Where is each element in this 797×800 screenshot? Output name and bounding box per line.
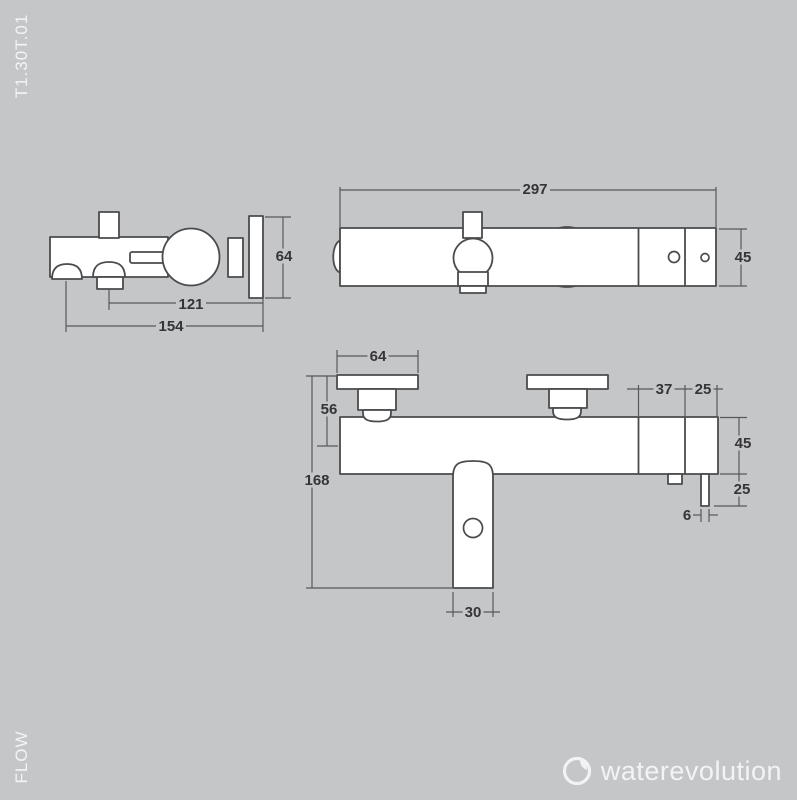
top-hole-large <box>669 252 680 263</box>
dim-label-total-width: 297 <box>522 181 547 198</box>
front-connector-left-cap <box>363 410 391 422</box>
top-lever-tip <box>460 286 486 293</box>
top-body-bar <box>340 228 716 286</box>
dim-label-outlet-drop: 25 <box>734 481 751 498</box>
side-connector <box>228 238 243 277</box>
dim-label-body-height: 45 <box>735 435 752 452</box>
dim-label-total-height: 168 <box>304 472 329 489</box>
water-drop-ring-icon <box>560 754 594 788</box>
front-escutcheon-right <box>527 375 608 389</box>
top-view: 297 45 <box>333 181 753 293</box>
dim-label-spout-width: 30 <box>465 604 482 621</box>
front-spout-hole <box>464 519 483 538</box>
front-outlet-pipe <box>701 474 709 506</box>
datasheet-page: T1.30T.01 FLOW 64 <box>0 0 797 800</box>
side-valve-housing <box>97 277 123 289</box>
dim-label-plate-height: 64 <box>276 248 293 265</box>
front-connector-left <box>358 389 396 410</box>
brand-logo-text: waterevolution <box>601 756 782 787</box>
side-knob-circle <box>163 229 220 286</box>
front-body-bar <box>340 417 718 474</box>
front-drain-nub <box>668 474 682 484</box>
dim-label-outlet-width: 6 <box>683 507 691 524</box>
dim-label-valve-to-wall: 121 <box>178 296 203 313</box>
side-wall-plate <box>249 216 263 298</box>
side-spout-outlet-dome <box>52 264 82 279</box>
front-view: 64 56 168 37 25 45 25 6 30 <box>302 348 754 621</box>
top-lever-base <box>458 272 488 286</box>
technical-drawing: 64 121 154 <box>0 0 797 800</box>
front-connector-right-cap <box>553 408 581 420</box>
top-hole-small <box>701 254 709 262</box>
side-view: 64 121 154 <box>50 212 295 335</box>
front-escutcheon-left <box>337 375 418 389</box>
side-valve-dome <box>93 262 125 277</box>
dim-label-body-depth: 45 <box>735 249 752 266</box>
dim-label-spout-to-wall: 154 <box>158 318 184 335</box>
top-bar-end-cap <box>333 241 340 273</box>
side-diverter-knob <box>99 212 119 238</box>
dim-label-right-seg-a: 37 <box>656 381 673 398</box>
front-connector-right <box>549 389 587 408</box>
top-diverter-knob <box>463 212 482 238</box>
dim-label-right-seg-b: 25 <box>695 381 712 398</box>
dim-label-escutcheon-width: 64 <box>370 348 387 365</box>
dim-label-top-to-axis: 56 <box>321 401 338 418</box>
brand-logo: waterevolution <box>560 754 782 788</box>
